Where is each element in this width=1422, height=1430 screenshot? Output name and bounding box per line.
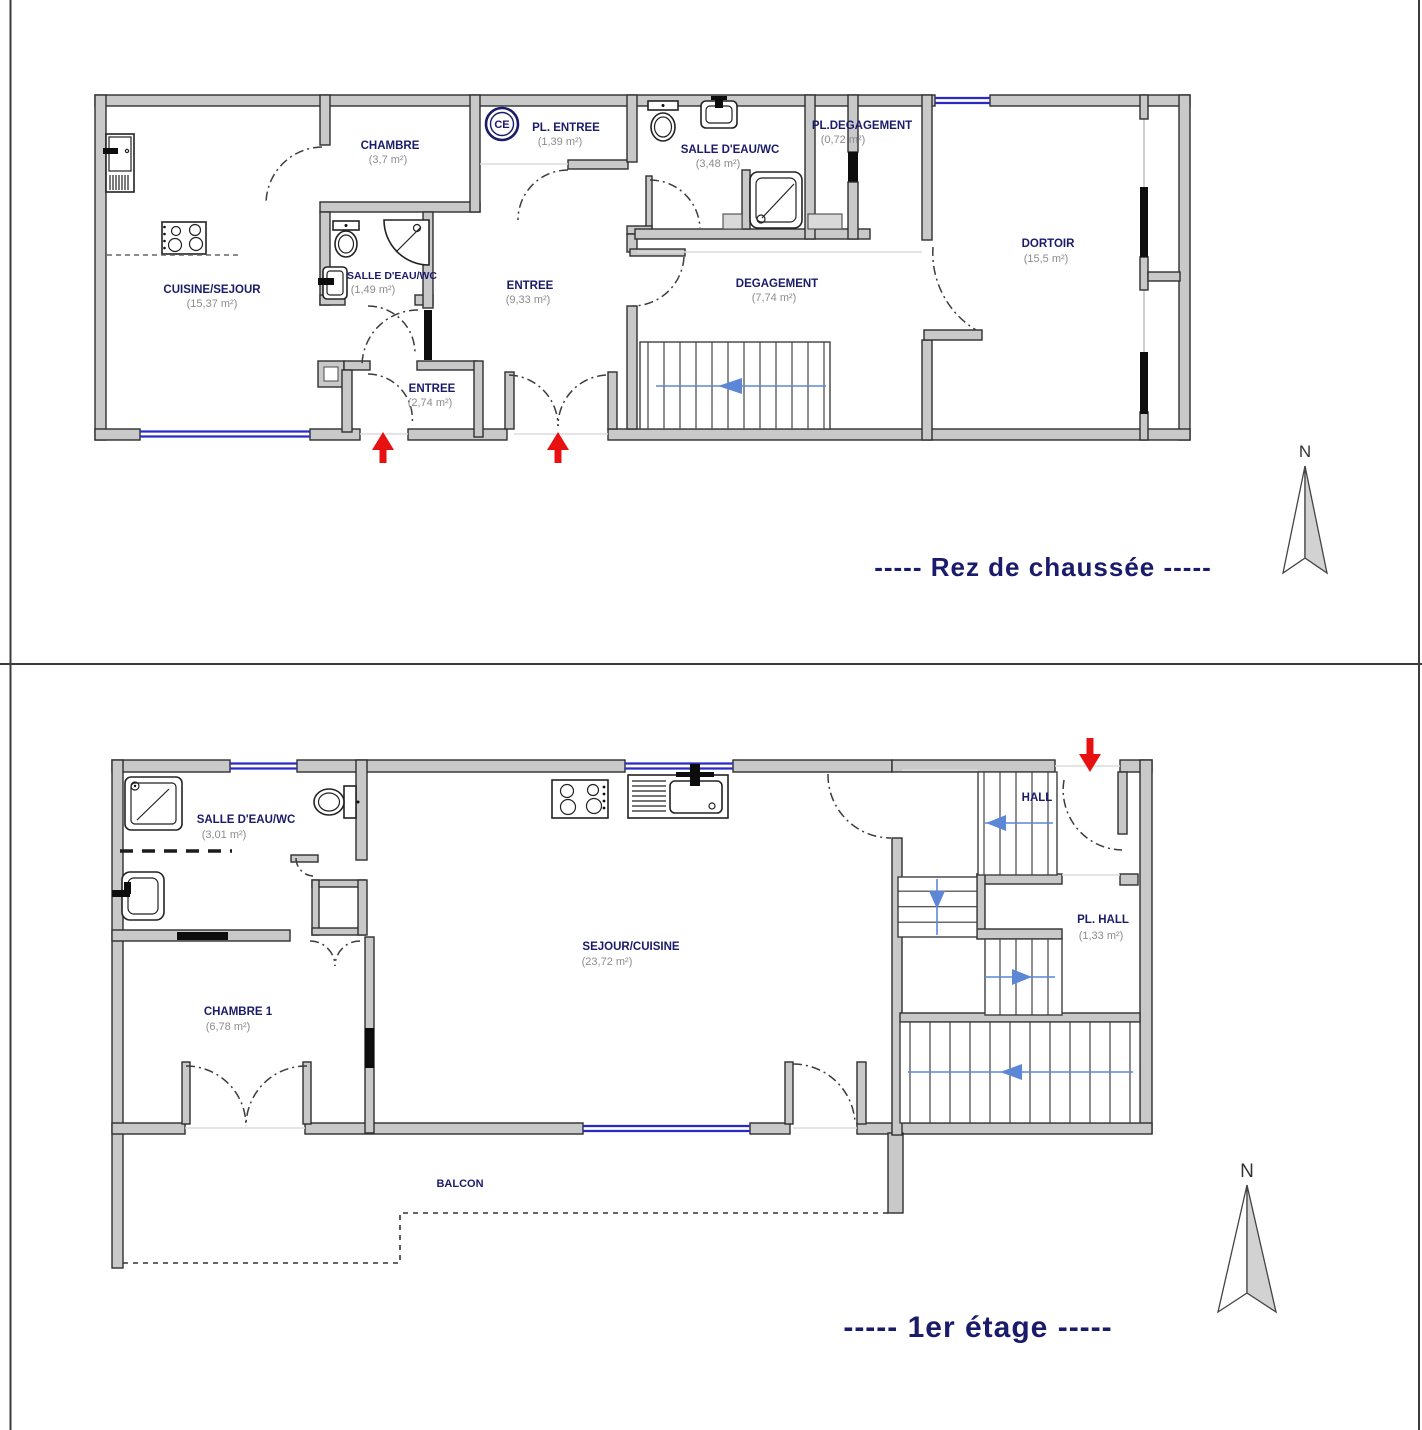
ce-badge: CE xyxy=(486,108,518,140)
north-label-first: N xyxy=(1240,1161,1254,1182)
room-label-ff-salle-eau: SALLE D'EAU/WC xyxy=(197,814,296,826)
page-frame xyxy=(0,0,1422,1430)
north-compass-ground: N xyxy=(1283,442,1327,573)
north-label-ground: N xyxy=(1299,442,1311,461)
ff-stairs xyxy=(898,772,1140,1123)
ground-floor-plan: CE CUISINE/SEJOUR (15,37 m²) CHAMBRE (3,… xyxy=(95,95,1327,582)
gf-toilet-icon xyxy=(648,101,678,141)
room-label-pl-entree: PL. ENTREE xyxy=(532,122,600,134)
gf-window-bottom xyxy=(140,432,310,437)
room-label-cuisine-sejour: CUISINE/SEJOUR xyxy=(163,284,261,296)
north-compass-first: N xyxy=(1218,1161,1276,1312)
gf-dortoir-right-wall xyxy=(1140,95,1180,440)
first-floor-plan: SALLE D'EAU/WC (3,01 m²) CHAMBRE 1 (6,78… xyxy=(112,738,1276,1344)
room-label-entree-small: ENTREE xyxy=(409,383,456,395)
gf-entry-arrow-1 xyxy=(372,432,394,463)
gf-sink-small-icon xyxy=(318,267,347,299)
ff-balcony-outline xyxy=(123,1213,888,1263)
room-area-salle-eau-small: (1,49 m²) xyxy=(351,284,396,296)
room-label-balcon: BALCON xyxy=(436,1178,483,1190)
room-label-chambre: CHAMBRE xyxy=(361,140,420,152)
gf-water-heater-icon xyxy=(103,134,134,192)
room-label-salle-eau: SALLE D'EAU/WC xyxy=(681,144,780,156)
room-label-entree-main: ENTREE xyxy=(507,280,554,292)
gf-entry-arrow-2 xyxy=(547,432,569,463)
room-area-sejour-cuisine: (23,72 m²) xyxy=(582,956,633,968)
ce-badge-label: CE xyxy=(494,119,509,131)
ff-entry-arrow xyxy=(1079,738,1101,772)
room-area-pl-hall: (1,33 m²) xyxy=(1079,930,1124,942)
north-arrow-left-half-2 xyxy=(1218,1185,1247,1312)
room-area-dortoir: (15,5 m²) xyxy=(1024,253,1069,265)
first-floor-title: ----- 1er étage ----- xyxy=(843,1311,1112,1344)
north-arrow-right-half-2 xyxy=(1247,1185,1276,1312)
room-label-hall: HALL xyxy=(1022,792,1053,804)
room-area-ff-salle-eau: (3,01 m²) xyxy=(202,829,247,841)
gf-sink-icon xyxy=(701,96,737,128)
room-area-pl-degagement: (0,72 m²) xyxy=(821,134,866,146)
room-label-sejour-cuisine: SEJOUR/CUISINE xyxy=(582,941,679,953)
north-arrow-right-half xyxy=(1305,466,1327,573)
room-label-salle-eau-small: SALLE D'EAU/WC xyxy=(347,270,437,282)
gf-window-top xyxy=(935,98,990,103)
room-label-degagement: DEGAGEMENT xyxy=(736,278,818,290)
room-area-chambre: (3,7 m²) xyxy=(369,154,408,166)
gf-stairs xyxy=(640,342,830,429)
gf-stove-icon xyxy=(162,222,206,254)
floor-plan-drawing: CE CUISINE/SEJOUR (15,37 m²) CHAMBRE (3,… xyxy=(0,0,1422,1430)
gf-shower-icon xyxy=(750,172,802,228)
room-label-pl-degagement: PL.DEGAGEMENT xyxy=(812,120,912,132)
ff-kitchen-sink-icon xyxy=(628,764,728,818)
floor-plan-page: CE CUISINE/SEJOUR (15,37 m²) CHAMBRE (3,… xyxy=(0,0,1422,1430)
north-arrow-left-half xyxy=(1283,466,1305,573)
ff-shower-icon xyxy=(125,777,182,830)
gf-shower-quarter-icon xyxy=(384,220,429,265)
room-area-salle-eau: (3,48 m²) xyxy=(696,158,741,170)
gf-toilet-small-icon xyxy=(333,221,359,257)
ff-stove-icon xyxy=(552,780,608,818)
room-area-cuisine-sejour: (15,37 m²) xyxy=(187,298,238,310)
ff-toilet-icon xyxy=(314,786,360,818)
room-area-pl-entree: (1,39 m²) xyxy=(538,136,583,148)
room-area-entree-main: (9,33 m²) xyxy=(506,294,551,306)
ground-floor-title: ----- Rez de chaussée ----- xyxy=(874,552,1212,582)
room-area-entree-small: (2,74 m²) xyxy=(408,397,453,409)
room-label-chambre1: CHAMBRE 1 xyxy=(204,1006,273,1018)
room-area-degagement: (7,74 m²) xyxy=(752,292,797,304)
room-label-dortoir: DORTOIR xyxy=(1022,238,1076,250)
room-label-pl-hall: PL. HALL xyxy=(1077,914,1129,926)
room-area-chambre1: (6,78 m²) xyxy=(206,1021,251,1033)
